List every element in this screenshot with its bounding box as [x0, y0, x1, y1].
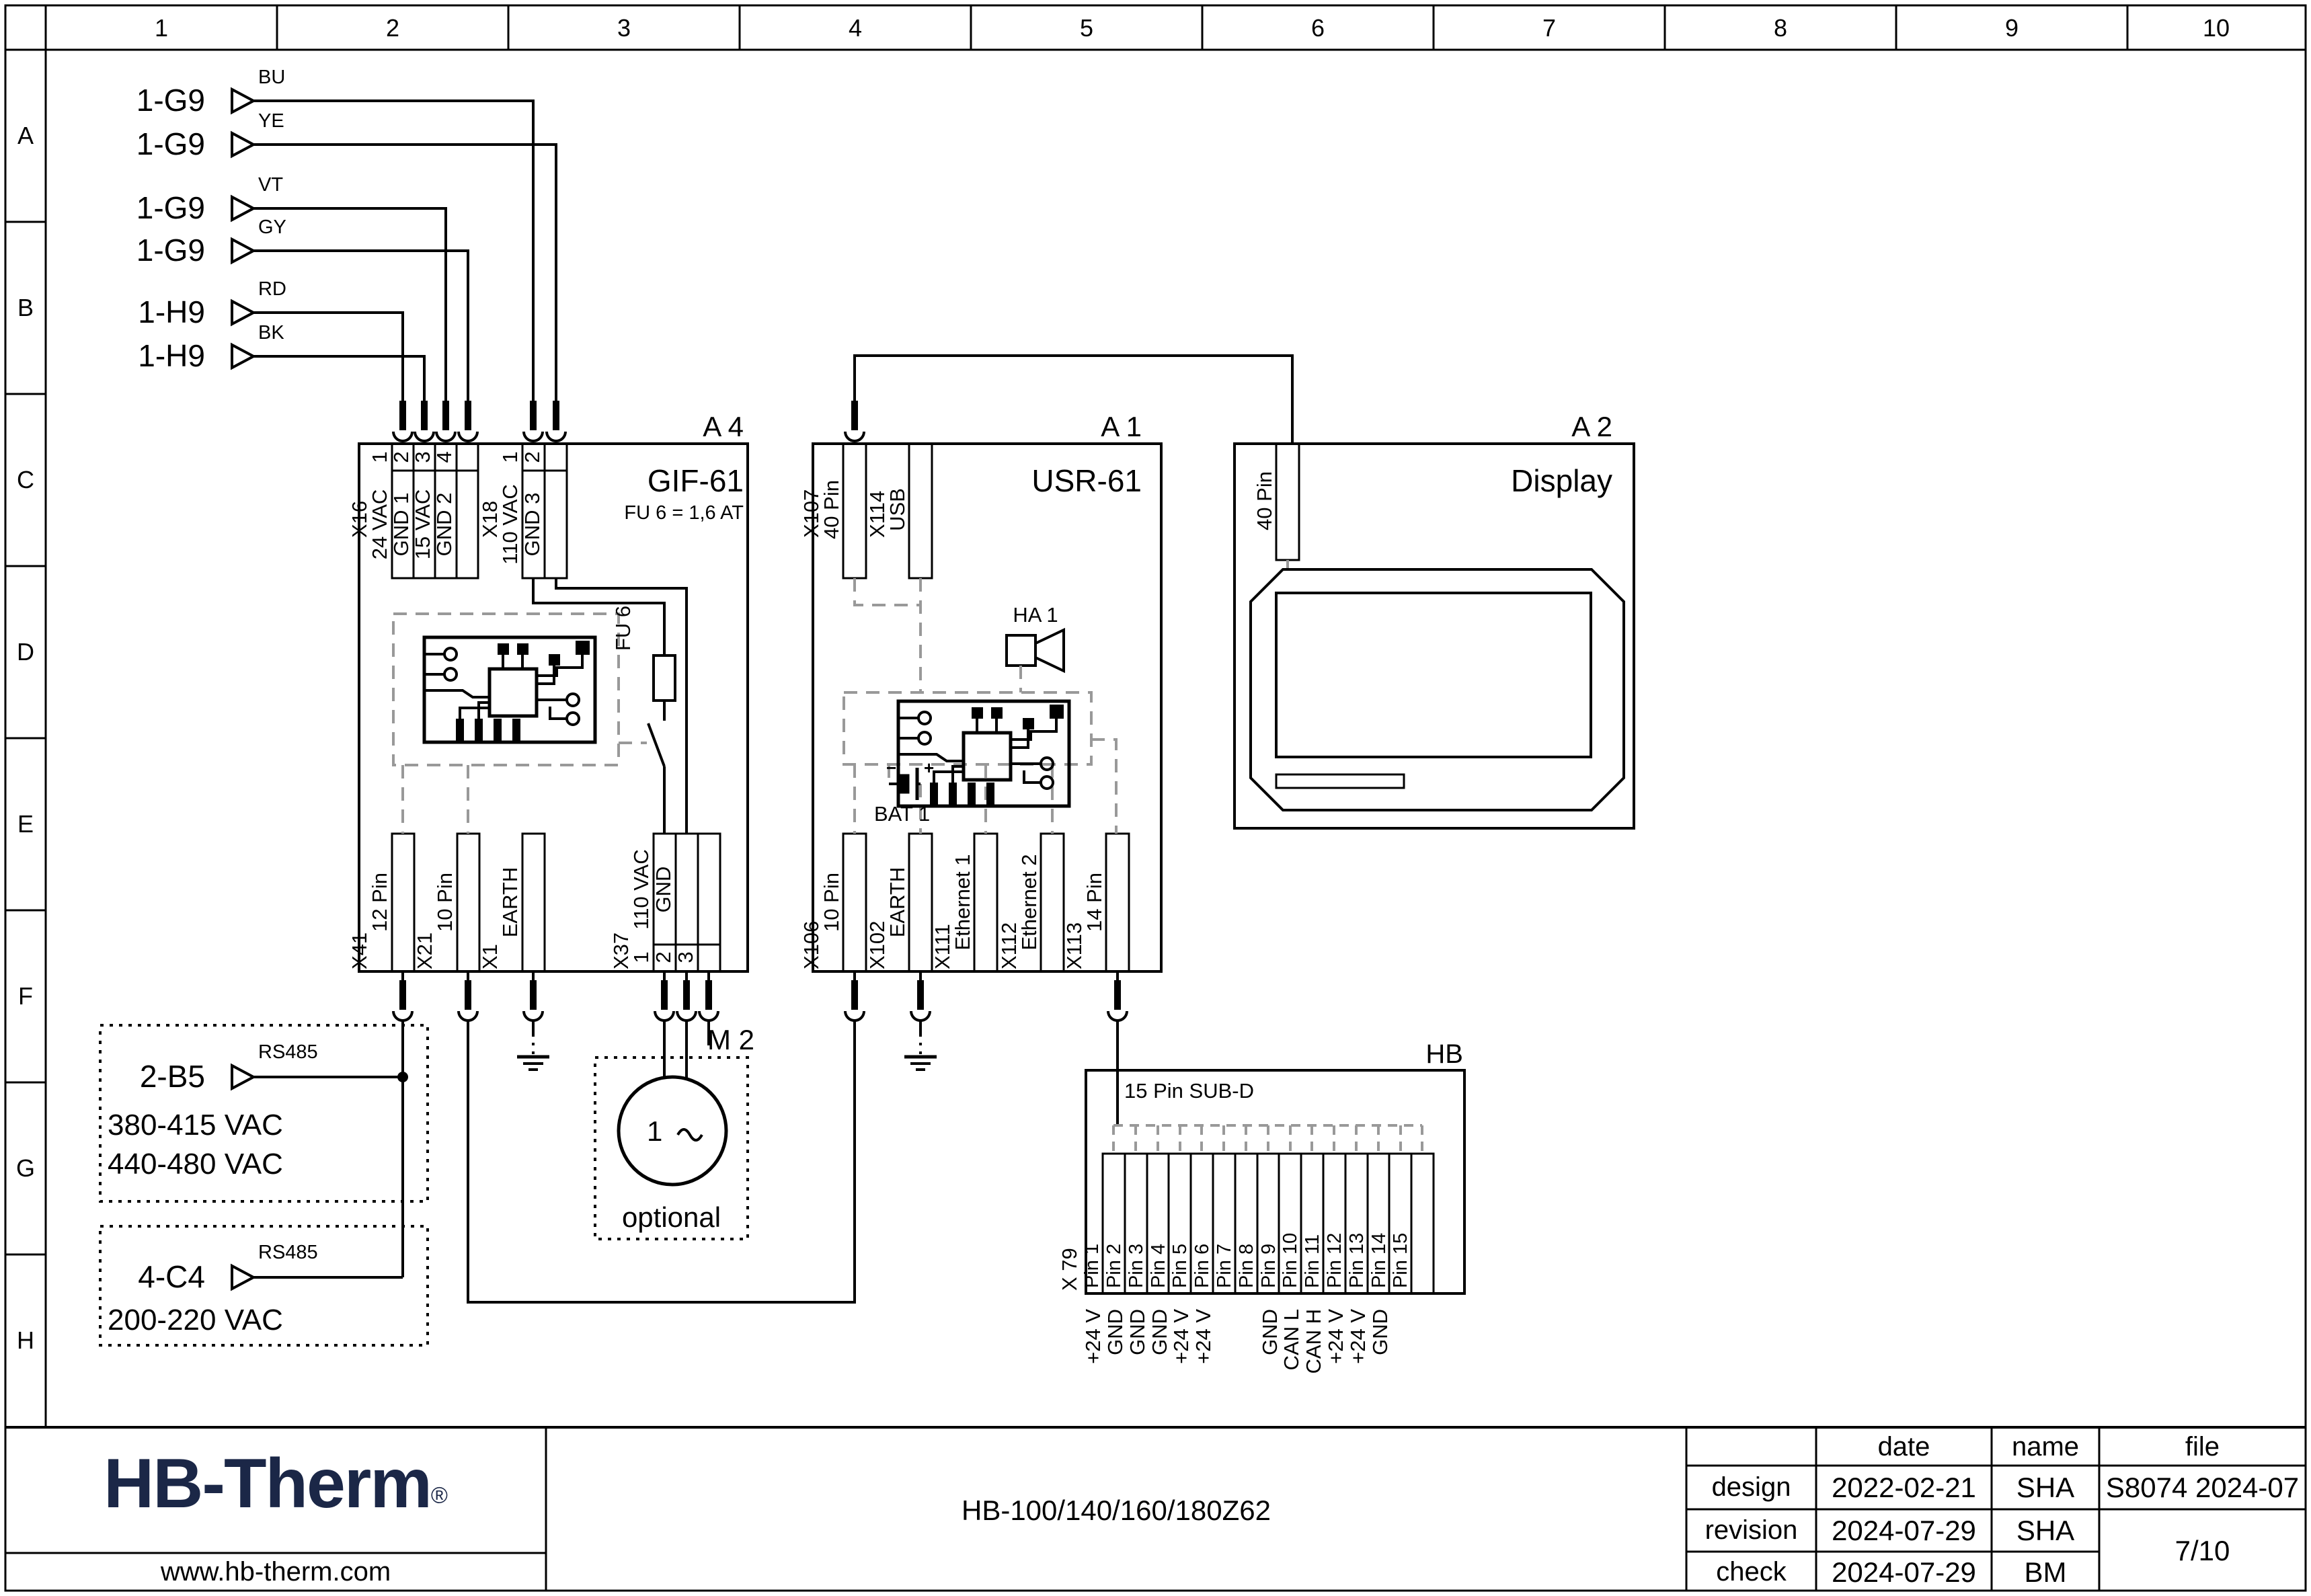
fuse-fu6-label: FU 6 — [612, 584, 635, 651]
fuse-fu6-icon — [654, 655, 675, 701]
x79-pin: Pin 13 — [1347, 1160, 1368, 1288]
battery-minus-sign: − — [886, 758, 896, 778]
a2-name: Display — [1478, 464, 1612, 498]
x102-pin-label: EARTH — [886, 835, 909, 969]
wire-color-code: RD — [258, 279, 286, 301]
x37-pin-number: 2 — [652, 945, 675, 970]
a2-40pin-connector — [1276, 444, 1299, 560]
logo-text: HB-Therm — [104, 1445, 431, 1523]
bat1-label: BAT 1 — [874, 803, 930, 826]
source-ref: 1-G9 — [94, 191, 205, 225]
a4-id: A 4 — [609, 411, 744, 442]
x112-pin-label: Ethernet 2 — [1018, 835, 1041, 969]
x79-signal: CAN L — [1280, 1309, 1302, 1403]
grid-row-g: G — [5, 1155, 46, 1182]
x79-pin: Pin 14 — [1369, 1160, 1390, 1288]
x16-pin-label: GND 2 — [433, 473, 456, 575]
display-screen-icon — [1276, 593, 1591, 757]
x79-pin: Pin 1 — [1082, 1160, 1103, 1288]
x79-signal: GND — [1148, 1309, 1170, 1403]
a4-pcb-icon — [424, 637, 595, 742]
x79-signal: GND — [1104, 1309, 1126, 1403]
a1-bottom-wires — [855, 971, 1118, 1125]
wire-color-code: YE — [258, 111, 284, 132]
x79-signal: +24 V — [1170, 1309, 1191, 1403]
x16-pin-number: 4 — [433, 445, 456, 469]
grid-row-f: F — [5, 983, 46, 1010]
x106-pin-label: 10 Pin — [820, 835, 843, 969]
x79-pin: Pin 7 — [1214, 1160, 1236, 1288]
col-header-name: name — [1992, 1432, 2099, 1462]
a4-name: GIF-61 — [609, 464, 744, 498]
feed-b5-bus: RS485 — [258, 1042, 318, 1064]
earth-symbol-x102 — [904, 1057, 937, 1070]
horn-ha1-icon — [1007, 630, 1064, 671]
x16-pin-number: 1 — [368, 445, 391, 469]
x16-pin-number: 2 — [390, 445, 413, 469]
check-name: BM — [1992, 1557, 2099, 1588]
x107-plug-icon — [845, 401, 864, 441]
source-arrow-icons — [232, 89, 253, 368]
source-ref: 1-H9 — [94, 295, 205, 329]
company-website: www.hb-therm.com — [5, 1557, 546, 1587]
display-button-bar-icon — [1276, 774, 1404, 788]
grid-row-b: B — [5, 294, 46, 321]
x37-pin-number: 1 — [630, 945, 653, 970]
x114-pin-label: USB — [886, 444, 909, 575]
x79-pin: Pin 12 — [1325, 1160, 1346, 1288]
registered-mark: ® — [431, 1483, 448, 1509]
x79-label: X 79 — [1058, 1163, 1081, 1291]
grid-col-1: 1 — [134, 15, 188, 42]
col-header-date: date — [1816, 1432, 1992, 1462]
hb-subd-dashed-bus — [1113, 1125, 1422, 1154]
revision-name: SHA — [1992, 1515, 2099, 1546]
x1-pin-label: EARTH — [499, 835, 522, 969]
a1-pcb-icon — [898, 701, 1069, 806]
x79-signal: +24 V — [1082, 1309, 1103, 1403]
row-header-check: check — [1686, 1557, 1816, 1587]
x79-pin: Pin 10 — [1280, 1160, 1302, 1288]
hb-id: HB — [1329, 1039, 1463, 1069]
x111-pin-label: Ethernet 1 — [951, 835, 974, 969]
wire-color-code: BK — [258, 323, 284, 344]
x79-pin: Pin 2 — [1104, 1160, 1126, 1288]
x18-pin-number: 2 — [521, 445, 544, 469]
x79-pin: Pin 5 — [1170, 1160, 1191, 1288]
motor-phase-label: 1 — [647, 1116, 662, 1147]
x37-pin-label — [674, 836, 697, 943]
x79-signal: CAN H — [1302, 1309, 1324, 1403]
wire-color-code: VT — [258, 175, 283, 196]
x79-signal — [1237, 1309, 1258, 1403]
feed-b5-voltage-2: 440-480 VAC — [108, 1148, 283, 1181]
revision-date: 2024-07-29 — [1816, 1515, 1992, 1546]
a1-bottom-plug-icons — [845, 980, 1127, 1021]
a2-id: A 2 — [1478, 411, 1612, 442]
source-ref: 1-G9 — [94, 233, 205, 268]
grid-col-9: 9 — [1985, 15, 2039, 42]
x79-pin: Pin 8 — [1237, 1160, 1258, 1288]
feed-b5-voltage-1: 380-415 VAC — [108, 1109, 283, 1142]
battery-plus-sign: + — [924, 758, 934, 778]
grid-col-10: 10 — [2189, 15, 2243, 42]
x79-signal: +24 V — [1347, 1309, 1368, 1403]
check-date: 2024-07-29 — [1816, 1557, 1992, 1588]
grid-row-a: A — [5, 122, 46, 149]
col-header-file: file — [2099, 1432, 2306, 1462]
grid-row-h: H — [5, 1327, 46, 1354]
file-id: S8074 2024-07 — [2099, 1472, 2306, 1503]
x79-pin: Pin 3 — [1126, 1160, 1148, 1288]
x18-pin-label: 110 VAC — [499, 473, 522, 575]
schematic-page: 1 2 3 4 5 6 7 8 9 10 A B C D E F G H 1-G… — [0, 0, 2311, 1596]
a2-40pin-label: 40 Pin — [1253, 444, 1276, 558]
feed-c4-voltage: 200-220 VAC — [108, 1304, 283, 1336]
x21-pin-label: 10 Pin — [434, 835, 457, 969]
grid-col-8: 8 — [1754, 15, 1807, 42]
x79-pin: Pin 9 — [1259, 1160, 1280, 1288]
a1-id: A 1 — [1007, 411, 1142, 442]
company-logo: HB-Therm® — [5, 1445, 546, 1522]
x79-pin: Pin 4 — [1148, 1160, 1170, 1288]
design-name: SHA — [1992, 1472, 2099, 1503]
switch-contact-icon — [648, 723, 664, 766]
a2-block — [1235, 444, 1634, 828]
source-ref: 1-H9 — [94, 339, 205, 373]
ha1-label: HA 1 — [985, 604, 1086, 627]
feed-c4-ref: 4-C4 — [94, 1260, 205, 1294]
x37-pin-number: 3 — [674, 945, 697, 970]
x107-pin-label: 40 Pin — [820, 444, 843, 575]
x16-pin-number: 3 — [412, 445, 434, 469]
x16-pin-label: GND 1 — [390, 473, 413, 575]
x18-pin-number: 1 — [499, 445, 522, 469]
drawing-title: HB-100/140/160/180Z62 — [546, 1495, 1686, 1526]
a4-fuse-note: FU 6 = 1,6 AT — [576, 503, 744, 524]
grid-col-6: 6 — [1291, 15, 1345, 42]
hb-subd-label: 15 Pin SUB-D — [1124, 1080, 1254, 1103]
x79-signal — [1214, 1309, 1236, 1403]
x41-pin-label: 12 Pin — [368, 835, 391, 969]
a4-bottom-plug-icons — [393, 980, 718, 1021]
x79-signal — [1390, 1309, 1412, 1403]
source-wires — [253, 101, 556, 401]
feed-c4-bus: RS485 — [258, 1242, 318, 1264]
x113-pin-label: 14 Pin — [1083, 835, 1106, 969]
earth-symbol-x1 — [517, 1057, 549, 1070]
source-ref: 1-G9 — [94, 83, 205, 118]
wire-color-code: BU — [258, 67, 285, 89]
grid-row-d: D — [5, 639, 46, 666]
grid-row-c: C — [5, 467, 46, 493]
grid-row-e: E — [5, 811, 46, 838]
m2-id: M 2 — [620, 1025, 754, 1055]
x16-pin-label: 24 VAC — [368, 473, 391, 575]
grid-col-3: 3 — [597, 15, 651, 42]
x79-signal: GND — [1259, 1309, 1280, 1403]
x79-signal: GND — [1369, 1309, 1390, 1403]
motor-circle-icon — [619, 1077, 726, 1185]
a4-top-plug-icons — [393, 401, 565, 441]
grid-col-7: 7 — [1522, 15, 1576, 42]
m2-optional-label: optional — [595, 1202, 748, 1233]
grid-col-4: 4 — [828, 15, 882, 42]
page-number: 7/10 — [2099, 1535, 2306, 1566]
grid-col-2: 2 — [366, 15, 420, 42]
x18-pin-label: GND 3 — [521, 473, 544, 575]
sine-wave-icon — [678, 1129, 702, 1140]
design-date: 2022-02-21 — [1816, 1472, 1992, 1503]
x79-signal: GND — [1126, 1309, 1148, 1403]
x79-pin: Pin 6 — [1192, 1160, 1214, 1288]
x79-pin: Pin 11 — [1302, 1160, 1324, 1288]
a1-name: USR-61 — [1007, 464, 1142, 498]
row-header-design: design — [1686, 1472, 1816, 1502]
grid-col-5: 5 — [1060, 15, 1113, 42]
x79-pin: Pin 15 — [1390, 1160, 1412, 1288]
x79-signal: +24 V — [1192, 1309, 1214, 1403]
a4-internal-wires — [533, 578, 687, 834]
x16-pin-label: 15 VAC — [412, 473, 434, 575]
x37-pin-label: 110 VAC — [630, 836, 653, 943]
x79-signal: +24 V — [1325, 1309, 1346, 1403]
row-header-revision: revision — [1686, 1515, 1816, 1545]
source-ref: 1-G9 — [94, 127, 205, 161]
x37-pin-label: GND — [652, 836, 675, 943]
feed-b5-ref: 2-B5 — [94, 1060, 205, 1094]
wire-color-code: GY — [258, 217, 286, 239]
